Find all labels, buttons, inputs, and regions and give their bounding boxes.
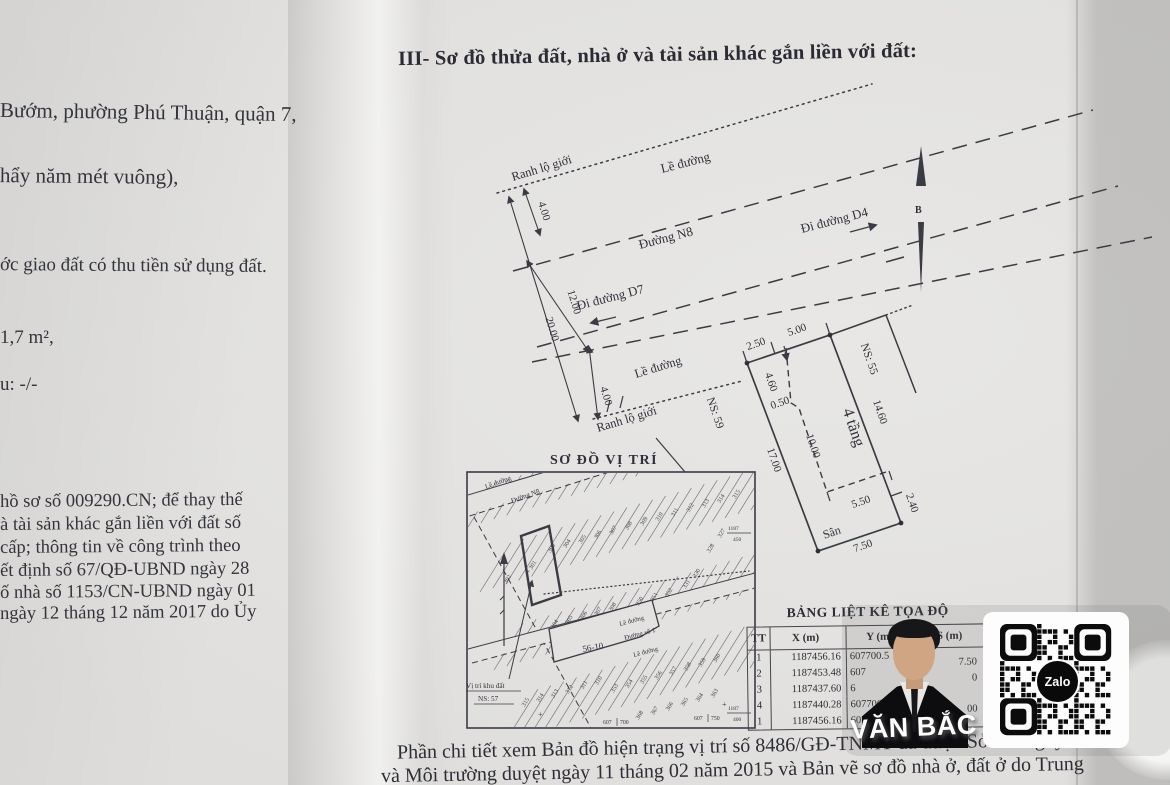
dim-line-20: [509, 197, 578, 421]
qr-module: [1027, 693, 1031, 697]
parcel-boundary-line: [634, 650, 667, 703]
parcel-number: 355: [639, 674, 649, 685]
qr-module: [1000, 688, 1004, 692]
label-ranh-lo-gioi-top: Ranh lộ giới: [510, 152, 574, 184]
stray-line: [656, 438, 685, 472]
scanned-land-certificate: Bướm, phường Phú Thuận, quận 7, hẩy năm …: [0, 0, 1170, 785]
qr-module: [1101, 730, 1105, 734]
parcel-number: 312: [686, 503, 696, 514]
parcel-number: 312: [565, 684, 575, 695]
tick: [886, 257, 904, 262]
qr-module: [1000, 672, 1004, 676]
parcel-number: 311: [580, 680, 590, 691]
qr-module: [1106, 709, 1110, 713]
parcel-boundary-line: [505, 689, 538, 742]
tick: [826, 323, 830, 335]
grid-coord: 400: [733, 717, 742, 723]
parcel-number: 358: [683, 662, 693, 673]
yard-label: Sân: [821, 523, 843, 542]
qr-module: [1090, 714, 1094, 718]
dim-house-length: 10.00: [803, 432, 823, 460]
neighbor-top-edge: [830, 315, 886, 335]
parcel-number: 308: [624, 521, 634, 532]
qr-module: [1048, 629, 1052, 633]
qr-module: [1106, 677, 1110, 681]
qr-module: [1074, 704, 1078, 708]
parcel-number: 365: [680, 697, 690, 708]
parcel-number: 315: [732, 489, 742, 500]
parcel-number: 360: [712, 653, 722, 664]
qr-module: [1042, 719, 1046, 723]
grid-coord: 700: [620, 720, 629, 726]
qr-module: [1048, 704, 1052, 708]
dim-line-4-top: [524, 189, 540, 235]
qr-module: [1037, 714, 1041, 718]
grid-coord: 607: [694, 716, 703, 722]
qr-module: [1095, 730, 1099, 734]
qr-module: [1005, 688, 1009, 692]
tick: [827, 492, 830, 501]
parcel-number: 364: [695, 692, 705, 703]
parcel-number: 356: [654, 670, 664, 681]
label-le-duong-top: Lề đường: [659, 149, 712, 176]
grid-coord: 750: [711, 716, 720, 722]
zalo-qr-code: Zalo: [983, 612, 1129, 748]
qr-module: [1037, 656, 1041, 660]
arrow-to-d7: [591, 317, 616, 323]
qr-module: [1042, 651, 1046, 655]
cross-mark: +: [538, 710, 543, 719]
label-to-road-d4: Đi đường D4: [799, 204, 870, 236]
qr-module: [1074, 661, 1078, 665]
qr-module: [1037, 725, 1041, 729]
parcel-number: 330: [692, 568, 702, 579]
qr-module: [1053, 714, 1057, 718]
qr-module: [1064, 629, 1068, 633]
parcel-number: + 301: [526, 560, 538, 575]
cell-tt: 4: [748, 698, 771, 714]
dim-bottom: 7.50: [852, 537, 875, 555]
grid-coord: 1187: [728, 526, 739, 532]
qr-module: [1064, 645, 1068, 649]
qr-module: [1058, 645, 1062, 649]
parcel-boundary-line: [726, 405, 754, 449]
house-label: 4 tầng: [839, 406, 868, 449]
qr-module: [1101, 719, 1105, 723]
parcel-number: 315: [521, 697, 531, 708]
qr-module: [1064, 719, 1068, 723]
dim-right-end: 2.40: [903, 492, 921, 515]
road-band: [458, 462, 608, 508]
qr-module: [1069, 656, 1073, 660]
col-header-x: X (m): [770, 626, 846, 649]
label-to-road-d7: Đi đường D7: [575, 281, 646, 313]
qr-module: [1090, 704, 1094, 708]
cross-mark: +: [722, 700, 727, 709]
parcel-number: 367: [650, 706, 660, 717]
cell-x: 1187456.16: [772, 712, 848, 729]
qr-module: [1085, 714, 1089, 718]
qr-module: [1069, 635, 1073, 639]
portrait-hair: [891, 623, 937, 638]
north-letter: B: [915, 205, 922, 216]
dim-yard: 5.50: [850, 493, 873, 511]
qr-module: [1074, 719, 1078, 723]
qr-module: [1048, 730, 1052, 734]
parcel-number: 368: [635, 710, 645, 721]
map-subject-label-2: NS: 57: [478, 695, 499, 703]
road-boundary-dotted-top: [497, 84, 872, 193]
qr-module: [1085, 704, 1089, 708]
qr-module: [1069, 730, 1073, 734]
qr-module: [1074, 709, 1078, 713]
parcel-number: 303: [547, 543, 557, 554]
qr-module: [1080, 719, 1084, 723]
dim-top-right: 5.00: [786, 321, 809, 339]
qr-module: [1037, 730, 1041, 734]
qr-module: [1101, 682, 1105, 686]
qr-module: [1042, 645, 1046, 649]
qr-module: [1101, 704, 1105, 708]
subject-arrow: [509, 581, 532, 679]
qr-module: [1042, 629, 1046, 633]
qr-module: [1069, 714, 1073, 718]
corner-dot: [899, 521, 904, 526]
qr-module: [1037, 640, 1041, 644]
dim-20: 20.00: [543, 316, 562, 344]
parcel-boundary-line: [518, 685, 551, 738]
qr-module: [1037, 698, 1041, 702]
qr-module: [1106, 693, 1110, 697]
map-sidewalk-mid2: Lề đường: [633, 645, 660, 658]
qr-module: [1095, 682, 1099, 686]
qr-module: [1000, 677, 1004, 681]
qr-module: [1032, 693, 1036, 697]
qr-module: [1106, 714, 1110, 718]
parcel-number: 328: [706, 543, 716, 554]
qr-module: [1053, 704, 1057, 708]
parcel-number: 310: [655, 512, 665, 523]
map-subject-label-1: Vị trí khu đất: [466, 682, 505, 690]
cell-x: 1187440.28: [771, 697, 847, 714]
qr-module: [1080, 725, 1084, 729]
parcel-number: 366: [665, 701, 675, 712]
parcel-boundary-line: [687, 417, 715, 461]
qr-module: [1011, 677, 1015, 681]
qr-module: [1053, 709, 1057, 713]
qr-module: [1090, 709, 1094, 713]
dim-4-bottom: 4.00: [597, 385, 614, 407]
qr-module: [1037, 719, 1041, 723]
cell-tt: 3: [748, 682, 771, 698]
tick: [743, 351, 747, 363]
cell-tt: 1: [749, 714, 772, 730]
qr-module: [1090, 672, 1094, 676]
qr-module: [1000, 682, 1004, 686]
qr-module: [1058, 725, 1062, 729]
dim-top-left: 2.50: [745, 335, 768, 353]
cell-tt: 2: [748, 666, 771, 682]
cell-x: 1187456.16: [771, 649, 847, 666]
parcel-boundary-line: [662, 424, 690, 468]
qr-module: [1090, 677, 1094, 681]
grid-coord: 1187: [728, 706, 739, 712]
parcel-number: 310: [594, 676, 604, 687]
corner-dot: [816, 549, 821, 554]
zalo-logo-text: Zalo: [1045, 675, 1071, 689]
neighbor-right-edge: [886, 315, 916, 393]
qr-module: [1069, 709, 1073, 713]
label-le-duong-mid: Lề đường: [633, 353, 684, 381]
north-arrow-tail: [918, 222, 924, 292]
arrow-to-d4: [850, 225, 876, 232]
qr-module: [1037, 624, 1041, 628]
zalo-logo: Zalo: [1035, 659, 1080, 704]
parcel-boundary-line: [621, 654, 654, 707]
qr-module: [1106, 730, 1110, 734]
parcel-number: 363: [710, 688, 720, 699]
qr-module: [1037, 704, 1041, 708]
qr-module: [1037, 629, 1041, 633]
qr-module: [1101, 693, 1105, 697]
neighbor-left-label: NS: 59: [704, 396, 726, 431]
parcel-number: 304: [563, 539, 573, 550]
parcel-boundary-line: [739, 401, 767, 445]
qr-module: [1011, 666, 1015, 670]
qr-module: [1106, 672, 1110, 676]
parcel-boundary-line: [531, 682, 564, 735]
qr-module: [1085, 693, 1089, 697]
qr-module: [1016, 677, 1020, 681]
qr-module: [1074, 714, 1078, 718]
col-header-tt: TT: [747, 627, 770, 649]
qr-module: [1053, 629, 1057, 633]
label-ranh-lo-gioi-bottom: Ranh lộ giới: [595, 403, 659, 435]
tick: [771, 342, 775, 354]
qr-module: [1037, 635, 1041, 639]
qr-module: [1058, 730, 1062, 734]
qr-module: [1095, 688, 1099, 692]
qr-module: [1085, 666, 1089, 670]
parcel-number: 327: [717, 528, 727, 539]
qr-module: [1011, 693, 1015, 697]
watermark-name: VĂN BẮC: [845, 709, 981, 746]
parcel-boundary-line: [582, 666, 615, 719]
qr-module: [1095, 719, 1099, 723]
road-edge-dashed-1: [513, 110, 1093, 271]
dim-jog: 0.50: [769, 394, 792, 412]
dim-4-top: 4.00: [535, 200, 552, 222]
neighbor-dotted-ext: [886, 305, 913, 315]
qr-module: [1027, 666, 1031, 670]
qr-module: [1064, 704, 1068, 708]
qr-module: [1037, 645, 1041, 649]
parcel-number: 305: [578, 534, 588, 545]
qr-module: [1064, 730, 1068, 734]
qr-module: [1021, 693, 1025, 697]
location-map-title: SƠ ĐỒ VỊ TRÍ: [550, 450, 658, 468]
qr-module: [1074, 725, 1078, 729]
qr-module: [1101, 666, 1105, 670]
qr-module: [1042, 704, 1046, 708]
qr-module: [1058, 719, 1062, 723]
neighbor-right-label: NS: 55: [858, 342, 880, 377]
qr-module: [1069, 640, 1073, 644]
qr-module: [1095, 693, 1099, 697]
qr-module: [1027, 682, 1031, 686]
qr-module: [1058, 651, 1062, 655]
dim-line-4-bottom: [589, 347, 598, 419]
cell-tt: 1: [748, 650, 771, 666]
dim-house-width: 4.60: [762, 371, 780, 394]
qr-module: [1080, 704, 1084, 708]
north-arrow-icon: [916, 146, 926, 186]
cell-x: 1187453.48: [771, 665, 847, 682]
qr-module: [1042, 725, 1046, 729]
parcel-number: 353: [610, 683, 620, 694]
tick: [620, 396, 623, 408]
parcel-number: 313: [550, 688, 560, 699]
qr-module: [1000, 666, 1004, 670]
qr-module: [1005, 682, 1009, 686]
qr-module: [1080, 682, 1084, 686]
qr-module: [1090, 666, 1094, 670]
parcel-number: 314: [536, 693, 546, 704]
qr-module: [1048, 714, 1052, 718]
qr-module: [1085, 730, 1089, 734]
qr-module: [1080, 688, 1084, 692]
qr-module: [1005, 666, 1009, 670]
qr-module: [1074, 730, 1078, 734]
road-edge-dashed-2: [537, 186, 1118, 347]
qr-module: [1037, 651, 1041, 655]
qr-module: [1085, 677, 1089, 681]
dim-12: 12.00: [565, 289, 584, 317]
qr-module: [1037, 709, 1041, 713]
parcel-number: 307: [609, 525, 619, 536]
qr-module: [1053, 640, 1057, 644]
tick: [889, 471, 892, 480]
parcel-number: 313: [701, 498, 711, 509]
qr-module: [1000, 693, 1004, 697]
qr-module: [1016, 666, 1020, 670]
qr-module: [1095, 725, 1099, 729]
qr-module: [1074, 698, 1078, 702]
dim-right: 14.60: [870, 398, 890, 426]
qr-module: [1016, 672, 1020, 676]
qr-module: [1021, 688, 1025, 692]
grid-coord: 607: [603, 720, 612, 726]
location-map-interior: Lề đường Đường N8 Lề đường Đường số 1 Lề…: [458, 397, 783, 742]
parcel-number: 331: [682, 579, 692, 590]
qr-module: [1048, 640, 1052, 644]
qr-module: [1021, 682, 1025, 686]
parcel-boundary-line: [674, 420, 702, 464]
qr-module: [1080, 666, 1084, 670]
qr-module: [1053, 635, 1057, 639]
qr-module: [1000, 661, 1004, 665]
tick: [891, 492, 902, 496]
grid-coord: 450: [733, 537, 742, 543]
parcel-number: 359: [698, 657, 708, 668]
parcel-number: 302: [503, 574, 513, 585]
label-road-n8: Đường N8: [637, 223, 694, 251]
cell-x: 1187437.60: [771, 681, 847, 698]
subject-parcel-bold: [521, 526, 561, 605]
